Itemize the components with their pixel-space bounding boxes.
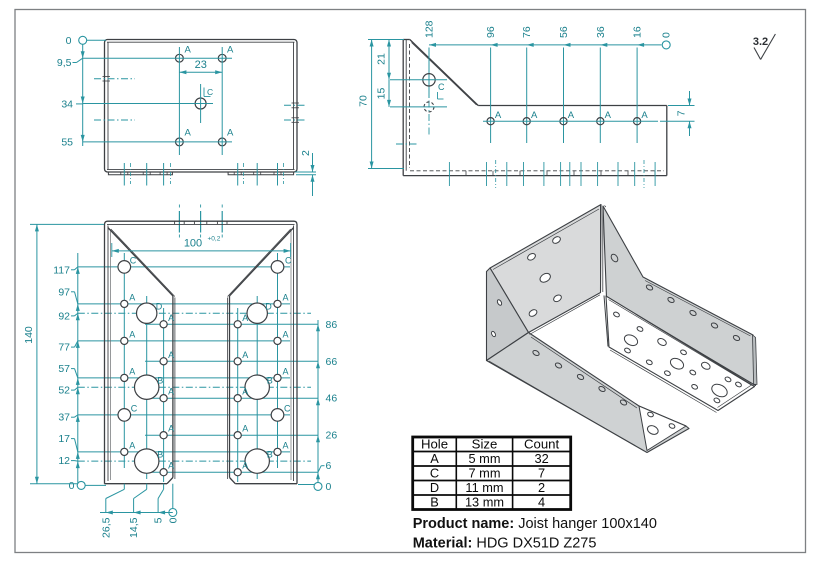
svg-text:C: C [131, 403, 138, 413]
svg-text:13 mm: 13 mm [465, 494, 504, 509]
svg-text:A: A [568, 110, 575, 121]
svg-text:A: A [495, 110, 502, 121]
svg-text:11 mm: 11 mm [465, 480, 503, 495]
svg-text:12: 12 [58, 455, 70, 467]
svg-text:9,5: 9,5 [57, 57, 72, 69]
svg-text:A: A [531, 110, 538, 121]
svg-text:A: A [168, 424, 174, 434]
svg-text:C: C [438, 82, 445, 92]
svg-text:A: A [185, 128, 192, 139]
svg-text:C: C [207, 87, 213, 97]
svg-text:46: 46 [326, 393, 338, 405]
svg-text:A: A [185, 45, 192, 56]
svg-text:2: 2 [538, 480, 545, 495]
svg-text:17: 17 [58, 433, 70, 445]
svg-text:34: 34 [61, 99, 73, 111]
svg-text:97: 97 [58, 286, 70, 298]
svg-text:37: 37 [58, 412, 70, 424]
svg-text:36: 36 [595, 26, 607, 38]
svg-text:100: 100 [184, 238, 202, 250]
svg-text:A: A [430, 451, 439, 466]
svg-text:Count: Count [524, 436, 560, 451]
svg-text:A: A [242, 387, 248, 397]
svg-text:92: 92 [58, 310, 70, 322]
svg-text:+0,2: +0,2 [208, 236, 221, 243]
svg-text:A: A [227, 45, 234, 56]
svg-text:Product name: Joist hanger 100: Product name: Joist hanger 100x140 [413, 516, 657, 532]
svg-text:Hole: Hole [421, 436, 448, 451]
svg-text:C: C [284, 403, 291, 413]
svg-text:C: C [430, 465, 439, 480]
svg-text:5: 5 [153, 517, 165, 523]
svg-text:96: 96 [485, 26, 497, 38]
svg-text:57: 57 [58, 363, 70, 375]
svg-text:A: A [168, 387, 174, 397]
svg-text:B: B [157, 376, 163, 386]
svg-text:Material: HDG DX51D Z275: Material: HDG DX51D Z275 [413, 536, 597, 552]
svg-text:32: 32 [534, 451, 548, 466]
svg-text:77: 77 [58, 342, 70, 354]
svg-text:A: A [129, 329, 135, 339]
svg-text:A: A [242, 350, 248, 360]
svg-text:B: B [267, 450, 273, 460]
svg-text:6: 6 [326, 460, 332, 472]
svg-text:2: 2 [300, 150, 312, 156]
svg-text:A: A [227, 128, 234, 139]
svg-text:A: A [283, 366, 289, 376]
svg-text:7: 7 [538, 465, 545, 480]
svg-text:76: 76 [521, 26, 533, 38]
svg-text:A: A [168, 313, 174, 323]
svg-text:55: 55 [61, 137, 73, 149]
svg-text:26,5: 26,5 [100, 517, 112, 538]
svg-text:A: A [283, 292, 289, 302]
svg-text:86: 86 [326, 319, 338, 331]
svg-text:7: 7 [676, 110, 688, 116]
svg-text:0: 0 [326, 481, 332, 493]
svg-text:4: 4 [538, 494, 545, 509]
svg-text:B: B [267, 376, 273, 386]
svg-text:A: A [605, 110, 612, 121]
svg-text:B: B [430, 494, 439, 509]
svg-text:0: 0 [661, 32, 673, 38]
svg-text:128: 128 [424, 20, 436, 38]
svg-text:C: C [130, 255, 137, 265]
svg-text:A: A [641, 110, 648, 121]
svg-text:A: A [283, 329, 289, 339]
svg-text:0: 0 [66, 35, 72, 47]
svg-text:A: A [242, 424, 248, 434]
svg-text:140: 140 [23, 326, 35, 344]
svg-text:52: 52 [58, 385, 70, 397]
svg-text:70: 70 [358, 95, 370, 107]
svg-text:23: 23 [195, 59, 207, 71]
svg-text:26: 26 [326, 430, 338, 442]
svg-text:A: A [168, 350, 174, 360]
svg-text:7 mm: 7 mm [469, 465, 501, 480]
svg-text:D: D [156, 302, 163, 312]
svg-text:B: B [157, 450, 163, 460]
svg-text:A: A [168, 461, 174, 471]
svg-text:66: 66 [326, 356, 338, 368]
svg-text:A: A [129, 366, 135, 376]
svg-text:0: 0 [69, 480, 75, 492]
svg-text:5 mm: 5 mm [469, 451, 501, 466]
svg-text:16: 16 [632, 26, 644, 38]
svg-text:117: 117 [53, 264, 70, 276]
svg-text:A: A [129, 292, 135, 302]
svg-text:A: A [242, 461, 248, 471]
svg-text:15: 15 [376, 88, 388, 100]
svg-text:0: 0 [167, 517, 179, 523]
svg-text:D: D [265, 302, 272, 312]
svg-text:D: D [430, 480, 439, 495]
svg-text:A: A [283, 440, 289, 450]
svg-text:A: A [129, 440, 135, 450]
svg-text:A: A [242, 313, 248, 323]
svg-text:14,5: 14,5 [128, 517, 140, 538]
svg-text:Size: Size [472, 436, 498, 451]
svg-text:56: 56 [558, 26, 570, 38]
svg-text:3.2: 3.2 [753, 36, 768, 48]
svg-text:21: 21 [376, 53, 388, 65]
